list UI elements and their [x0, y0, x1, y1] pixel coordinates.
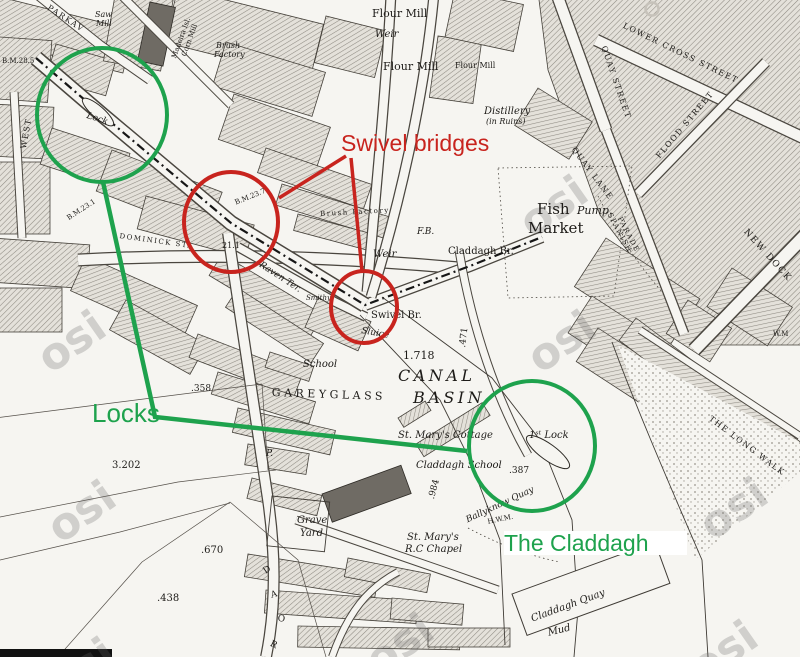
map-screenshot: osiosiosiosiosiosiosiosi PARKAVSawMillMa…	[0, 0, 800, 657]
locks-label: Locks	[92, 400, 160, 427]
the_claddagh-label: The Claddagh	[504, 531, 687, 555]
annotation-label-layer: Swivel bridgesLocksThe Claddagh	[0, 0, 800, 657]
swivel_bridges-label: Swivel bridges	[341, 131, 489, 155]
